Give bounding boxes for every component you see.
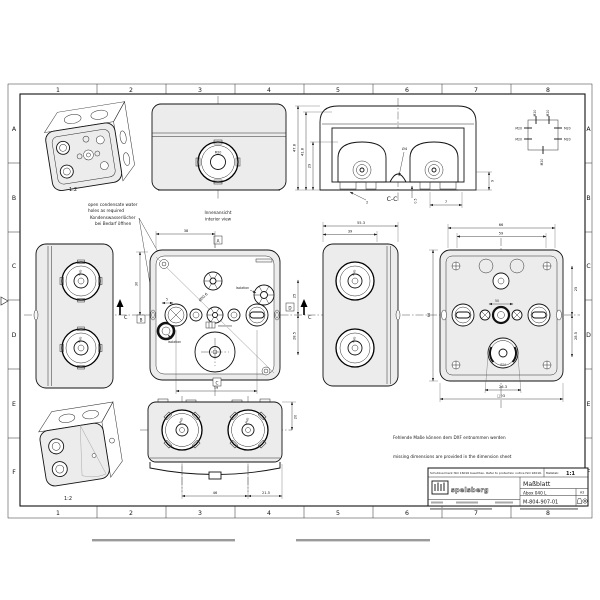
view-rear: Ø24 50 66 59 66 25 28.5 26.3 □93 <box>427 223 578 408</box>
svg-text:E: E <box>12 401 16 408</box>
view-marker-right: D <box>288 306 291 311</box>
dim-rear-59: 59 <box>499 232 504 236</box>
protection-notice: Schutzvermerk ISO 16016 beachten. Refer … <box>430 471 542 475</box>
section-arrow-right: C <box>301 299 313 321</box>
view-front: M20 <box>152 96 286 200</box>
svg-text:A: A <box>586 126 591 133</box>
dim-section-skirt: 9 <box>491 179 495 182</box>
product-name: Abox 040 L <box>523 491 547 496</box>
scale-value: 1:1 <box>566 471 575 477</box>
interior-view-label-en: interior view <box>205 217 232 222</box>
fold-mark <box>1 297 8 305</box>
svg-text:7: 7 <box>474 510 478 517</box>
brand-logo-text: spelsberg <box>451 487 489 494</box>
sheet-format: A3 <box>580 491 584 495</box>
view-iso-open-box: 1:2 <box>42 102 137 193</box>
svg-text:Kondenswasserlöcher: Kondenswasserlöcher <box>90 215 136 220</box>
svg-text:E: E <box>587 401 591 408</box>
dim-side-553: 55.3 <box>357 221 365 225</box>
note-missing-de: Fehlende Maße können dem DXF entnommen w… <box>393 435 506 440</box>
svg-text:1: 1 <box>56 87 60 94</box>
sheet-edge-mark <box>92 539 235 541</box>
svg-text:C: C <box>12 263 16 270</box>
dim-section-foot: 7 <box>445 200 447 204</box>
view-side-left: M20 M20 <box>34 244 113 388</box>
dim-section-hole: Ø4 <box>402 146 408 151</box>
grid-rows-right: A B C D E F <box>586 126 591 476</box>
dim-section-418: 41.8 <box>301 147 305 156</box>
svg-text:open condensate water: open condensate water <box>88 202 138 207</box>
ko-top-1: M20 <box>533 110 537 117</box>
dim-section-gap: 0.5 <box>414 199 418 204</box>
grid-columns-top: 1 2 3 4 5 6 7 8 <box>56 87 550 94</box>
svg-text:C: C <box>586 263 590 270</box>
svg-text:D: D <box>12 332 17 339</box>
svg-text:6: 6 <box>405 510 409 517</box>
dim-interior-38: 38 <box>184 229 189 233</box>
dim-bottom-46: 46 <box>213 491 218 495</box>
svg-text:holes as required: holes as required <box>88 208 124 213</box>
ko-top-2: M20 <box>546 110 550 117</box>
section-arrow-left: C <box>117 299 129 321</box>
view-marker-bottom: C <box>216 381 219 386</box>
dim-rear-263: 26.3 <box>499 385 507 389</box>
dim-rear-66: 66 <box>499 223 504 227</box>
grid-rows-left: A B C D E F <box>12 126 17 476</box>
grid-columns-bottom: 1 2 3 4 5 6 7 8 <box>56 510 550 517</box>
dim-interior-25: 25 <box>293 294 297 299</box>
dim-interior-59: 59 <box>214 386 219 390</box>
svg-text:8: 8 <box>546 87 550 94</box>
dim-section-29: 29 <box>308 163 312 168</box>
drawing-sheet: 1 2 3 4 5 6 7 8 1 2 3 4 5 6 7 8 A B C D … <box>0 0 600 600</box>
dim-bottom-20: 20 <box>294 414 298 419</box>
dim-interior-285: 28.5 <box>293 332 297 340</box>
view-interior: Isolation Isolation A B D C 38 30 5 Ø50.… <box>135 229 299 396</box>
note-missing-en: missing dimensions are provided in the d… <box>393 454 512 459</box>
svg-text:8: 8 <box>546 510 550 517</box>
svg-text:F: F <box>12 469 16 476</box>
view-marker-left: B <box>140 318 143 323</box>
svg-text:bei Bedarf öffnen: bei Bedarf öffnen <box>95 221 132 226</box>
ko-bottom: M20 <box>540 159 544 166</box>
isolation-label-2: Isolation <box>168 340 181 344</box>
svg-text:1: 1 <box>56 510 60 517</box>
svg-text:A: A <box>12 126 17 133</box>
svg-text:3: 3 <box>198 87 202 94</box>
dim-section-wall: 2 <box>366 201 368 205</box>
front-knockout-size: M20 <box>215 151 222 155</box>
isolation-label-1: Isolation <box>236 286 249 290</box>
dim-bottom-215: 21.5 <box>262 491 270 495</box>
doc-type: Maßblatt <box>523 481 551 488</box>
dim-rear-285: 28.5 <box>574 332 578 340</box>
dim-interior-30: 30 <box>135 281 139 286</box>
knockout-diagram: M20 M20 M20 M20 M20 M20 M20 <box>515 110 570 166</box>
dim-rear-25: 25 <box>574 287 578 292</box>
dim-section-478: 47.8 <box>293 143 297 152</box>
svg-text:5: 5 <box>336 87 340 94</box>
ko-left-2: M20 <box>515 138 522 142</box>
svg-text:6: 6 <box>405 87 409 94</box>
dim-side-39: 39 <box>348 230 353 234</box>
svg-text:D: D <box>586 332 591 339</box>
view-iso-closed-box: 1:2 <box>36 402 125 502</box>
ko-right-1: M20 <box>564 127 571 131</box>
section-name-label: C-C <box>387 196 398 203</box>
iso-open-scale-label: 1:2 <box>69 187 77 193</box>
svg-text:C: C <box>124 315 128 321</box>
ko-left-1: M20 <box>515 127 522 131</box>
dim-interior-5: 5 <box>166 298 168 302</box>
view-section-cc: 47.8 41.8 29 Ø4 2 0.5 7 9 C-C <box>293 98 495 208</box>
view-marker-top: A <box>217 239 220 244</box>
svg-text:4: 4 <box>267 87 271 94</box>
svg-text:4: 4 <box>267 510 271 517</box>
svg-text:2: 2 <box>129 87 133 94</box>
svg-text:7: 7 <box>474 87 478 94</box>
dim-rear-hole: Ø24 <box>500 362 506 367</box>
interior-view-label-de: Innenansicht <box>205 210 232 215</box>
svg-text:3: 3 <box>198 510 202 517</box>
view-side-right: M20 M20 55.3 39 <box>323 221 400 386</box>
iso-closed-scale-label: 1:2 <box>64 496 72 502</box>
ko-right-2: M20 <box>564 138 571 142</box>
sheet-edge-mark <box>296 539 430 541</box>
dim-rear-h66: 66 <box>427 312 431 317</box>
view-bottom: M20 M20 20 46 21.5 <box>140 396 298 499</box>
svg-text:C: C <box>308 315 312 321</box>
scale-label: Maßstab: <box>546 471 559 475</box>
svg-text:5: 5 <box>336 510 340 517</box>
svg-text:B: B <box>12 195 16 202</box>
title-block: Schutzvermerk ISO 16016 beachten. Refer … <box>428 468 588 510</box>
svg-text:2: 2 <box>129 510 133 517</box>
dim-rear-93: □93 <box>497 394 505 398</box>
svg-text:B: B <box>586 195 590 202</box>
doc-number: M-804-907-01 <box>523 500 558 506</box>
dim-rear-50: 50 <box>495 299 499 303</box>
